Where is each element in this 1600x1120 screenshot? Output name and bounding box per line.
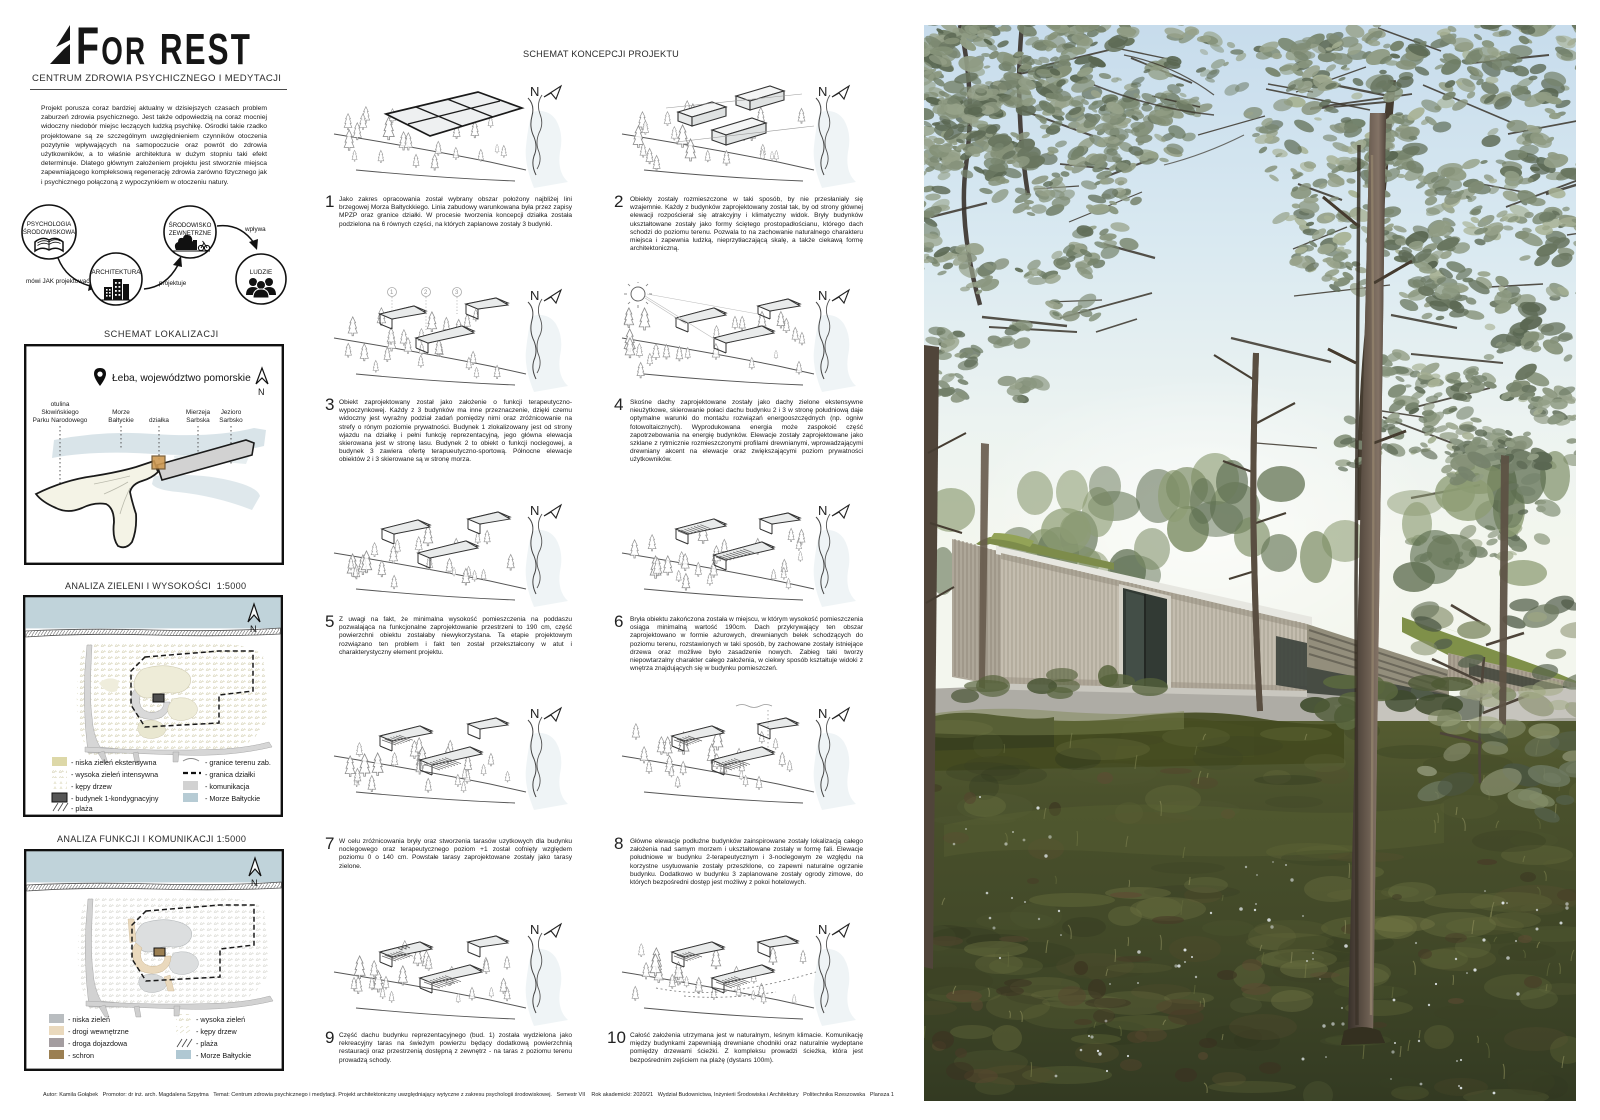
svg-text:działka: działka <box>149 417 169 424</box>
svg-text:wpływa: wpływa <box>244 226 266 233</box>
svg-text:- kępy drzew: - kępy drzew <box>71 782 113 791</box>
svg-text:Słowińskiego: Słowińskiego <box>41 409 79 416</box>
svg-text:Parku Narodowego: Parku Narodowego <box>33 417 88 424</box>
svg-text:ŚRODOWISKOWA: ŚRODOWISKOWA <box>23 228 76 236</box>
svg-text:- wysoka zieleń: - wysoka zieleń <box>196 1015 245 1024</box>
svg-text:projektuje: projektuje <box>159 280 187 287</box>
svg-text:N: N <box>250 624 257 634</box>
svg-text:- wysoka zieleń intensywna: - wysoka zieleń intensywna <box>71 770 158 779</box>
svg-text:- granice terenu zab.: - granice terenu zab. <box>205 758 271 767</box>
svg-text:- Morze Bałtyckie: - Morze Bałtyckie <box>196 1051 251 1060</box>
svg-text:2: 2 <box>424 290 428 296</box>
svg-text:- droga dojazdowa: - droga dojazdowa <box>68 1039 127 1048</box>
svg-text:- granica działki: - granica działki <box>205 770 255 779</box>
svg-text:- Morze Bałtyckie: - Morze Bałtyckie <box>205 794 260 803</box>
svg-text:- niska zieleń: - niska zieleń <box>68 1015 110 1024</box>
svg-text:- kępy drzew: - kępy drzew <box>196 1027 238 1036</box>
svg-text:Bałtyckie: Bałtyckie <box>108 417 134 424</box>
svg-text:- drogi wewnętrzne: - drogi wewnętrzne <box>68 1027 129 1036</box>
svg-text:PSYCHOLOGIA: PSYCHOLOGIA <box>27 221 72 228</box>
svg-text:ARCHITEKTURA: ARCHITEKTURA <box>92 269 142 276</box>
svg-text:FOR REST: FOR REST <box>76 23 252 68</box>
svg-text:otulina: otulina <box>51 401 70 408</box>
svg-text:Mierzeja: Mierzeja <box>186 409 211 416</box>
svg-text:Sarbska: Sarbska <box>186 417 210 424</box>
svg-text:1: 1 <box>390 290 394 296</box>
svg-text:Morze: Morze <box>112 409 130 416</box>
svg-text:Sarbsko: Sarbsko <box>219 417 243 424</box>
svg-text:- plaża: - plaża <box>196 1039 218 1048</box>
svg-text:- schron: - schron <box>68 1051 94 1060</box>
svg-text:- plaża: - plaża <box>71 804 93 813</box>
svg-text:- budynek 1-kondygnacyjny: - budynek 1-kondygnacyjny <box>71 794 159 803</box>
svg-text:ŚRODOWISKO: ŚRODOWISKO <box>169 221 212 229</box>
svg-text:N: N <box>251 878 258 888</box>
svg-text:N: N <box>258 387 265 397</box>
svg-text:Jezioro: Jezioro <box>221 409 242 416</box>
svg-text:3: 3 <box>455 290 459 296</box>
svg-text:mówi JAK projektować: mówi JAK projektować <box>26 278 89 285</box>
svg-text:- komunikacja: - komunikacja <box>205 782 249 791</box>
svg-text:Łeba, województwo pomorskie: Łeba, województwo pomorskie <box>112 373 251 384</box>
svg-text:- niska zieleń ekstensywna: - niska zieleń ekstensywna <box>71 758 157 767</box>
svg-text:LUDZIE: LUDZIE <box>250 269 272 276</box>
